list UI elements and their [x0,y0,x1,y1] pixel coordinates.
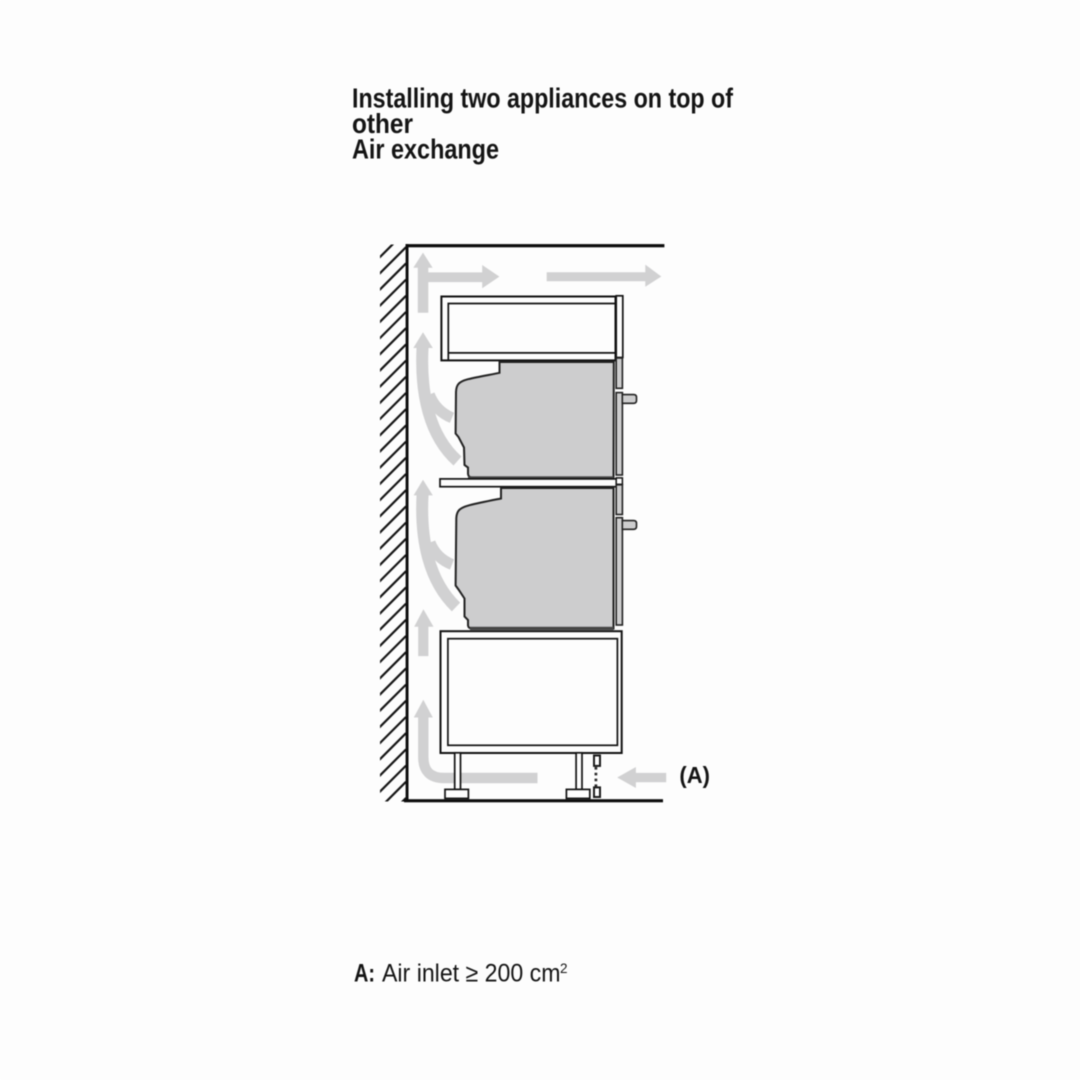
svg-text:Air inlet ≥ 200 cm: Air inlet ≥ 200 cm [382,960,561,988]
svg-text:2: 2 [560,961,568,976]
svg-text:(A): (A) [679,762,710,788]
svg-text:A:: A: [354,960,375,988]
svg-text:Air exchange: Air exchange [352,133,499,164]
